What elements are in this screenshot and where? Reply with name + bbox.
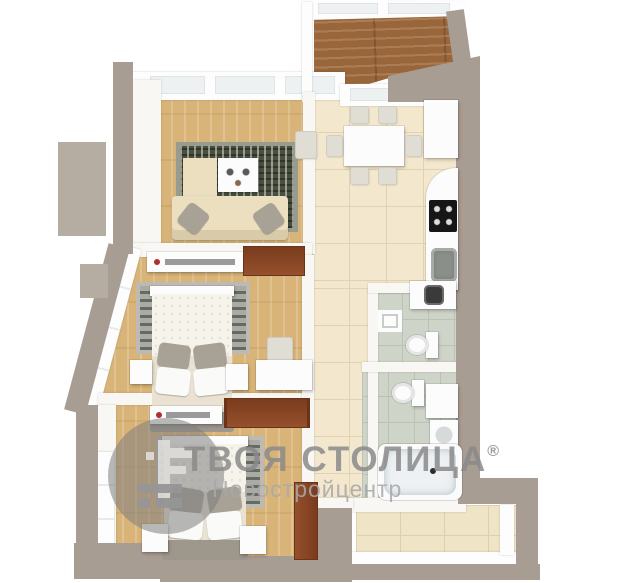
registered-trademark-symbol: ® <box>487 443 499 460</box>
toilet-bowl <box>392 383 414 403</box>
loggia-frame-bottom <box>348 564 540 580</box>
desk-chair <box>268 338 292 362</box>
coffee-table <box>218 158 258 192</box>
nightstand <box>226 364 248 390</box>
dining-chair <box>351 107 368 123</box>
window-pane <box>388 3 450 14</box>
wall-wc-bathroom <box>362 362 460 372</box>
cooktop <box>429 200 457 232</box>
bed-pillow <box>155 366 192 396</box>
kitchen-tall-cabinet <box>424 100 458 158</box>
bed-pillow <box>193 366 230 396</box>
wc-toilet <box>406 332 438 358</box>
wall-living-kitchen <box>303 92 315 254</box>
nightstand <box>130 360 152 384</box>
toilet-bowl <box>406 335 428 355</box>
loggia-frame-top <box>458 478 538 504</box>
tv-bar <box>165 259 235 265</box>
dining-chair <box>327 136 342 156</box>
living-room-left-wall <box>133 80 161 253</box>
wardrobe-bottom <box>224 398 310 428</box>
exterior-stub-diagonal <box>80 264 108 298</box>
bedroom-middle-door <box>243 246 305 276</box>
bathroom-toilet <box>392 380 424 406</box>
loggia-right-wall <box>500 505 514 555</box>
kitchen-sink <box>431 248 457 282</box>
watermark-brand-text: ТВОЯ СТОЛИЦА <box>184 440 487 479</box>
exterior-wall-right <box>456 88 480 488</box>
red-dot-decor <box>154 259 160 265</box>
dining-chair <box>406 136 421 156</box>
dining-chair <box>379 107 396 123</box>
exterior-wall-left-lower <box>76 405 98 565</box>
desk <box>256 360 312 390</box>
nightstand <box>240 526 266 554</box>
exterior-stub-left <box>58 142 106 236</box>
wc-sink <box>378 310 402 332</box>
bathroom-vanity <box>426 384 458 418</box>
dining-table <box>344 126 404 166</box>
armchair-cabinet <box>183 158 217 196</box>
dining-chair <box>351 168 368 184</box>
window-pane <box>215 76 275 94</box>
floor-plan: ТВОЯ СТОЛИЦА® Новостройцентр <box>0 0 622 583</box>
foot-bench <box>162 540 248 560</box>
window-pane <box>318 3 378 14</box>
washing-machine <box>410 281 456 309</box>
washer-door <box>424 285 444 305</box>
watermark-subtitle: Новостройцентр <box>212 476 402 503</box>
dining-chair <box>379 168 396 184</box>
exterior-wall-left-upper <box>113 62 133 254</box>
living-room-chair <box>296 132 316 158</box>
watermark-brand: ТВОЯ СТОЛИЦА® <box>184 440 499 480</box>
terrace-left-post <box>302 2 312 102</box>
